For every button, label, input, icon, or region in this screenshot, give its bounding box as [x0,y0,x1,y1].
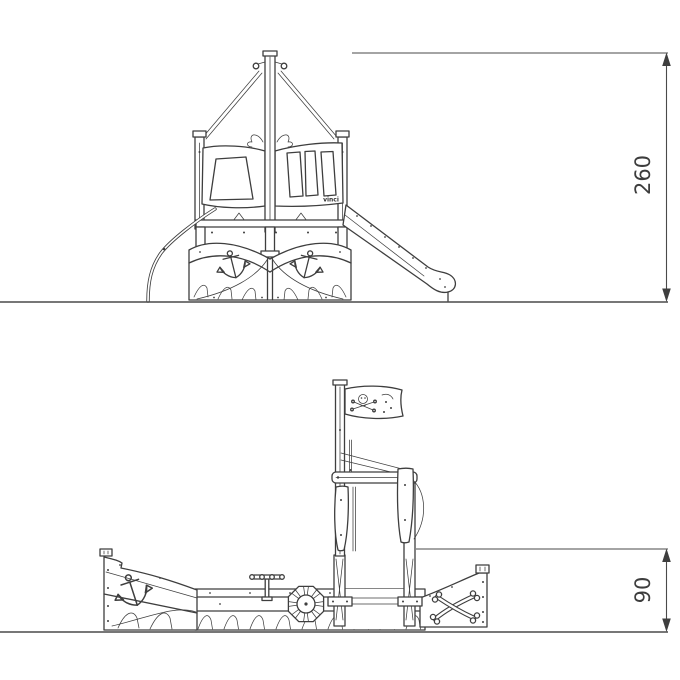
platform-structure [332,468,424,551]
dimension-label: 260 [631,155,655,195]
front-view: vinci [0,51,671,302]
post-cap [476,565,489,573]
vinci-logo: vinci [323,197,339,204]
hull-bow [100,549,197,630]
arrow-down-icon [662,289,671,303]
bracket-plate [398,597,422,606]
sail-panel-left [202,146,265,208]
hull-stern [420,565,489,627]
arrow-down-icon [662,619,671,633]
sail-panel-right: vinci [275,143,343,207]
slide-side-panel [397,468,413,543]
dimension-label: 90 [631,577,655,604]
slide-side-panel [335,486,349,551]
arrow-up-icon [662,53,671,67]
side-view: 90 [0,380,671,632]
pirate-flag-icon [345,386,403,418]
ships-wheel-icon [288,586,323,621]
technical-drawing: vinci [0,0,680,680]
bracket-plate [328,597,352,606]
slide [343,205,455,301]
arrow-up-icon [662,549,671,563]
technical-drawing-page: vinci [0,0,680,680]
post-cap [100,549,112,556]
